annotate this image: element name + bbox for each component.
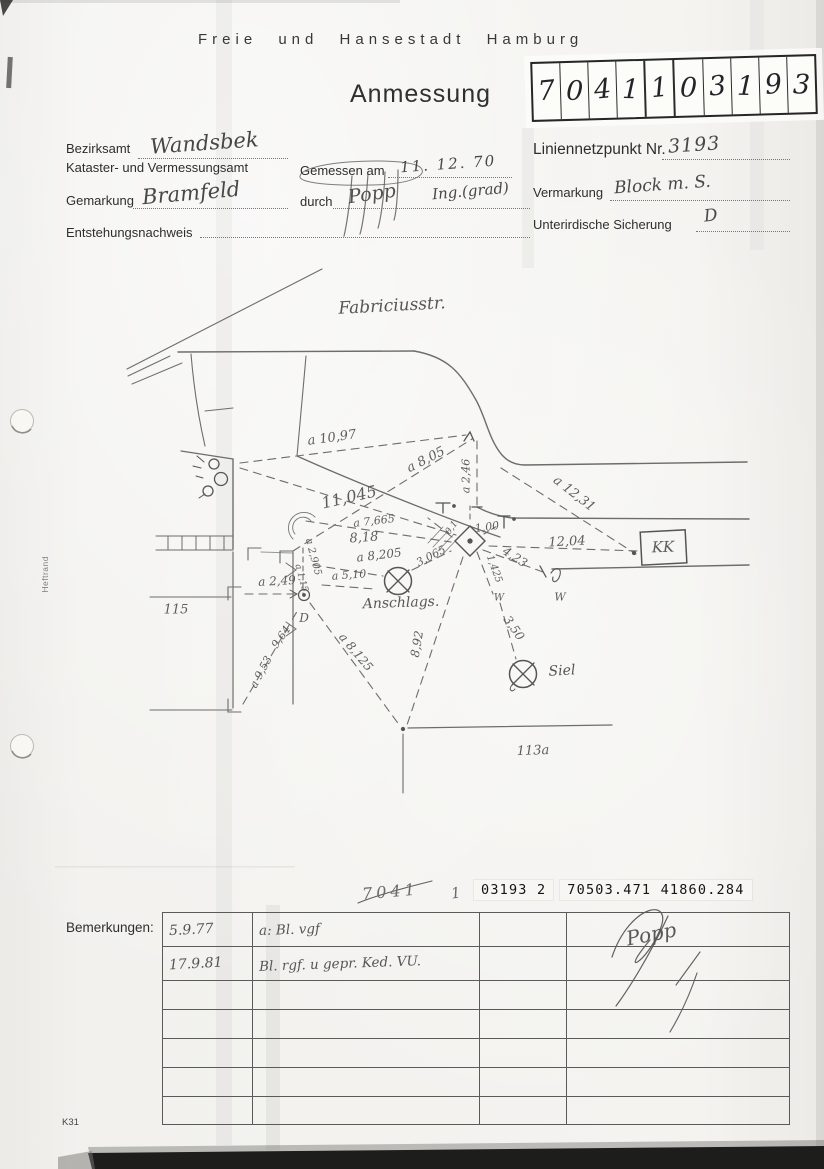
- handwriting-flourishes: [300, 161, 700, 1032]
- dotted-line: [333, 207, 530, 209]
- remarks-row: 17.9.81 Bl. rgf. u gepr. Ked. VU.: [163, 947, 790, 981]
- stamp-cell: 7: [532, 63, 561, 120]
- remarks-table: 5.9.77 a: Bl. vgf 17.9.81 Bl. rgf. u gep…: [162, 912, 790, 1125]
- durch-label: durch: [300, 194, 333, 209]
- gemessen-am-label: Gemessen am: [300, 163, 385, 178]
- remarks-row: [163, 1097, 790, 1125]
- liniennetzpunkt-value: 3193: [667, 132, 721, 158]
- kk-box: [640, 530, 687, 565]
- stamp-digit: 0: [566, 75, 584, 106]
- stamp-cell: 0: [559, 62, 589, 119]
- street-curve: [414, 351, 525, 465]
- stamp-digit: 1: [622, 74, 640, 105]
- scanned-survey-form: Freie und Hansestadt Hamburg Anmessung 7…: [0, 0, 824, 1169]
- stamp-digit: 1: [650, 71, 670, 104]
- stamp-cell: 0: [673, 59, 704, 116]
- reference-coordinates: 70503.471 41860.284: [560, 880, 751, 900]
- dotted-line: [696, 230, 790, 232]
- stamp-cell: 3: [786, 56, 816, 113]
- remarks-row: [163, 1039, 790, 1068]
- remarks-row: [163, 1068, 790, 1097]
- stamp-digit: 0: [680, 72, 698, 103]
- remarks-row: [163, 1010, 790, 1039]
- form-code: K31: [62, 1117, 79, 1128]
- remark-date: 5.9.77: [169, 920, 214, 938]
- entstehungsnachweis-label: Entstehungsnachweis: [66, 225, 192, 240]
- stamp-cell: 1: [644, 60, 675, 117]
- remarks-row: 5.9.77 a: Bl. vgf: [163, 913, 790, 947]
- dotted-line: [138, 157, 288, 159]
- dotted-line: [388, 176, 512, 178]
- fence-line: [297, 456, 500, 537]
- stamp-digit: 7: [536, 74, 556, 107]
- dotted-line: [200, 236, 530, 238]
- reference-typed-strip: 03193 2 70503.471 41860.284: [474, 880, 752, 900]
- point-number-stamp: 7 0 4 1 1 0 3 1 9 3: [530, 54, 818, 122]
- stamp-cell: 1: [616, 61, 646, 118]
- street-edge-top: [178, 351, 414, 352]
- hole-punches: [11, 410, 34, 758]
- vermarkung-label: Vermarkung: [533, 185, 603, 200]
- w-curl: [551, 569, 560, 582]
- remark-date: 17.9.81: [169, 954, 223, 973]
- gemarkung-label: Gemarkung: [66, 193, 134, 208]
- sicherung-value: D: [703, 205, 719, 226]
- unterirdische-sicherung-label: Unterirdische Sicherung: [533, 217, 672, 232]
- bezirksamt-label: Bezirksamt: [66, 141, 130, 156]
- heftrand-label: Heftrand: [40, 556, 50, 593]
- stamp-digit: 3: [792, 69, 810, 100]
- remark-text: Bl. rgf. u gepr. Ked. VU.: [259, 953, 421, 975]
- paper-crease: [750, 0, 764, 250]
- street-edge-right-1: [525, 462, 747, 465]
- remark-text: a: Bl. vgf: [259, 920, 321, 938]
- sketch-dashed-lines: [240, 435, 638, 726]
- stamp-cell: 3: [702, 58, 732, 115]
- bemerkungen-label: Bemerkungen:: [66, 920, 154, 935]
- page-header-city: Freie und Hansestadt Hamburg: [198, 31, 583, 48]
- stamp-cell: 4: [587, 62, 617, 119]
- parcel-line-bottom: [408, 725, 612, 728]
- stamp-cell: 9: [758, 57, 788, 114]
- point-d-symbol: [299, 590, 310, 601]
- street-edge-right-3: [552, 565, 749, 569]
- dotted-line: [133, 207, 288, 209]
- dotted-line: [662, 158, 790, 160]
- stamp-digit: 9: [763, 68, 783, 101]
- liniennetzpunkt-label: Liniennetzpunkt Nr.: [533, 141, 666, 159]
- stamp-digit: 3: [707, 70, 727, 103]
- reference-point-id: 03193 2: [474, 880, 553, 900]
- page-title: Anmessung: [350, 80, 491, 109]
- stamp-cell: 1: [730, 58, 760, 115]
- anschlag-manhole-symbol: [385, 568, 412, 595]
- kataster-label: Kataster- und Vermessungsamt: [66, 160, 248, 175]
- dotted-line: [610, 199, 790, 201]
- stamp-digit: 1: [736, 70, 754, 101]
- street-edge-right-2: [477, 507, 749, 519]
- stamp-digit: 4: [593, 73, 613, 106]
- remarks-row: [163, 981, 790, 1010]
- siel-manhole-symbol: [510, 661, 537, 691]
